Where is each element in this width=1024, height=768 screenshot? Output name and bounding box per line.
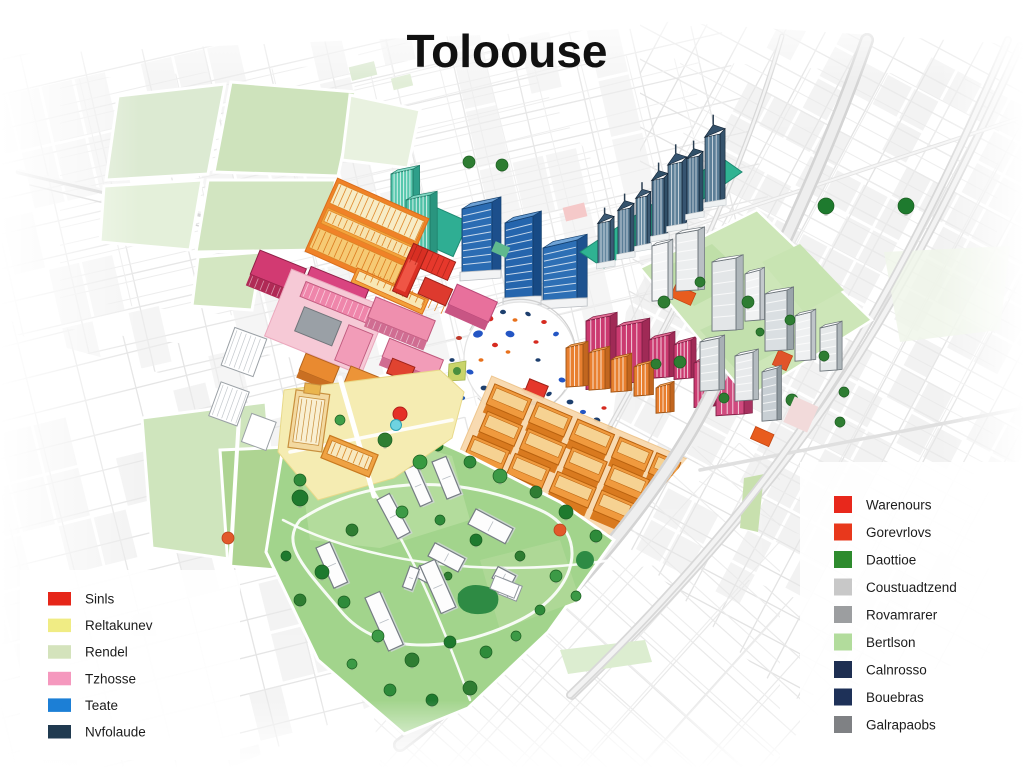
svg-text:Warenours: Warenours — [866, 498, 932, 513]
svg-text:Rendel: Rendel — [85, 645, 128, 660]
svg-text:Toloouse: Toloouse — [406, 25, 607, 77]
svg-text:Daottioe: Daottioe — [866, 553, 916, 568]
svg-text:Teate: Teate — [85, 698, 118, 713]
svg-text:Sinls: Sinls — [85, 592, 115, 607]
svg-text:Coustuadtzend: Coustuadtzend — [866, 580, 957, 595]
svg-text:Calnrosso: Calnrosso — [866, 663, 927, 678]
svg-text:Reltakunev: Reltakunev — [85, 618, 153, 633]
svg-text:Gorevrlovs: Gorevrlovs — [866, 525, 932, 540]
svg-text:Tzhosse: Tzhosse — [85, 671, 136, 686]
svg-text:Bouebras: Bouebras — [866, 690, 924, 705]
svg-text:Galrapaobs: Galrapaobs — [866, 718, 936, 733]
svg-text:Bertlson: Bertlson — [866, 635, 916, 650]
svg-text:Rovamrarer: Rovamrarer — [866, 608, 938, 623]
svg-text:Nvfolaude: Nvfolaude — [85, 725, 146, 740]
